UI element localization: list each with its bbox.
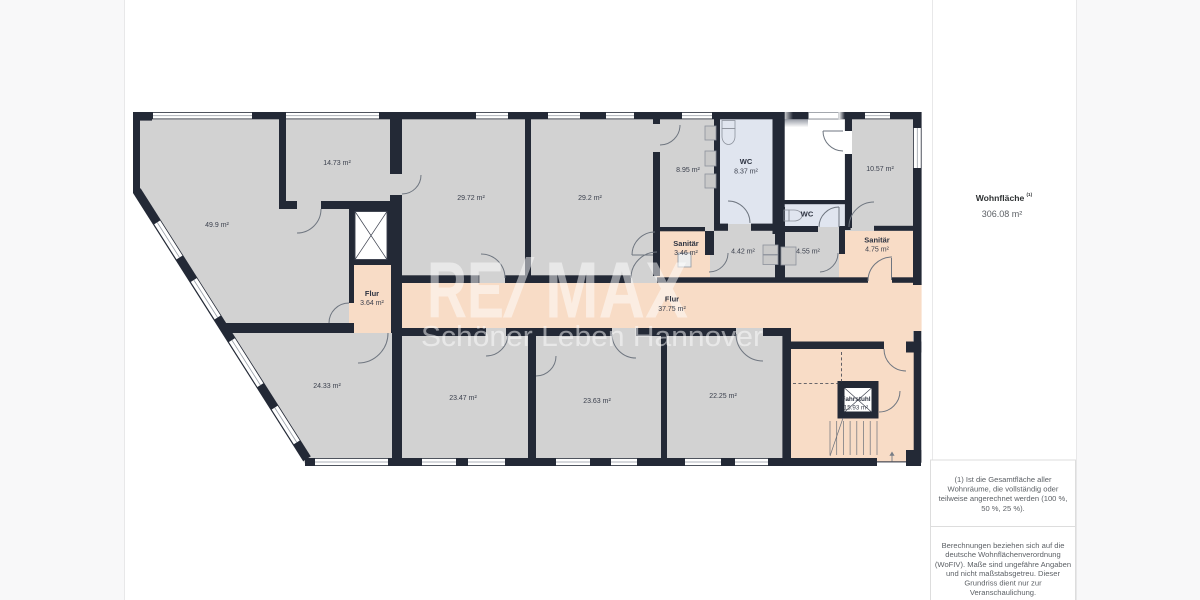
svg-text:Flur: Flur bbox=[365, 289, 379, 298]
svg-text:4.42 m²: 4.42 m² bbox=[731, 249, 755, 256]
svg-text:37.75 m²: 37.75 m² bbox=[658, 306, 686, 313]
svg-text:Sanitär: Sanitär bbox=[673, 239, 699, 248]
svg-text:4.75 m²: 4.75 m² bbox=[865, 247, 889, 254]
svg-text:29.72 m²: 29.72 m² bbox=[457, 195, 485, 202]
svg-text:Wohnräume, die vollständig ode: Wohnräume, die vollständig oder bbox=[948, 485, 1059, 494]
svg-text:8.95 m²: 8.95 m² bbox=[676, 167, 700, 174]
svg-text:Berechnungen beziehen sich auf: Berechnungen beziehen sich auf die bbox=[942, 541, 1065, 550]
svg-text:WC: WC bbox=[801, 210, 814, 219]
svg-text:49.9 m²: 49.9 m² bbox=[205, 222, 229, 229]
svg-text:29.2 m²: 29.2 m² bbox=[578, 195, 602, 202]
svg-text:3.64 m²: 3.64 m² bbox=[360, 300, 384, 307]
svg-text:(1): (1) bbox=[1027, 192, 1033, 197]
svg-text:Veranschaulichung.: Veranschaulichung. bbox=[970, 588, 1036, 597]
svg-text:Fahrstuhl: Fahrstuhl bbox=[841, 396, 870, 403]
svg-text:Wohnfläche: Wohnfläche bbox=[976, 193, 1025, 203]
svg-text:8.37 m²: 8.37 m² bbox=[734, 169, 758, 176]
svg-text:15.93 m²: 15.93 m² bbox=[844, 405, 868, 412]
svg-text:Flur: Flur bbox=[665, 295, 679, 304]
svg-text:23.47 m²: 23.47 m² bbox=[449, 395, 477, 402]
svg-text:24.33 m²: 24.33 m² bbox=[313, 383, 341, 390]
svg-text:Sanitär: Sanitär bbox=[864, 236, 890, 245]
svg-text:4.55 m²: 4.55 m² bbox=[796, 249, 820, 256]
svg-text:50 %, 25 %).: 50 %, 25 %). bbox=[981, 504, 1024, 513]
svg-text:306.08 m²: 306.08 m² bbox=[982, 209, 1023, 219]
svg-text:Schöner Leben Hannover: Schöner Leben Hannover bbox=[421, 321, 764, 353]
svg-text:23.63 m²: 23.63 m² bbox=[583, 398, 611, 405]
svg-text:deutsche Wohnflächenverordnung: deutsche Wohnflächenverordnung bbox=[945, 550, 1061, 559]
svg-text:14.73 m²: 14.73 m² bbox=[323, 160, 351, 167]
svg-text:und nicht maßstabsgetreu. Dies: und nicht maßstabsgetreu. Dieser bbox=[946, 569, 1060, 578]
svg-text:22.25 m²: 22.25 m² bbox=[709, 393, 737, 400]
svg-text:WC: WC bbox=[740, 157, 753, 166]
svg-text:(WoFIV). Maße sind ungefähre A: (WoFIV). Maße sind ungefähre Angaben bbox=[935, 560, 1071, 569]
svg-text:Grundriss dient nur zur: Grundriss dient nur zur bbox=[964, 579, 1042, 588]
svg-text:teilweise angerechnet werden (: teilweise angerechnet werden (100 %, bbox=[939, 494, 1068, 503]
svg-text:10.57 m²: 10.57 m² bbox=[866, 166, 894, 173]
svg-text:3.46 m²: 3.46 m² bbox=[674, 250, 698, 257]
svg-text:(1) Ist die Gesamtfläche aller: (1) Ist die Gesamtfläche aller bbox=[954, 475, 1052, 484]
